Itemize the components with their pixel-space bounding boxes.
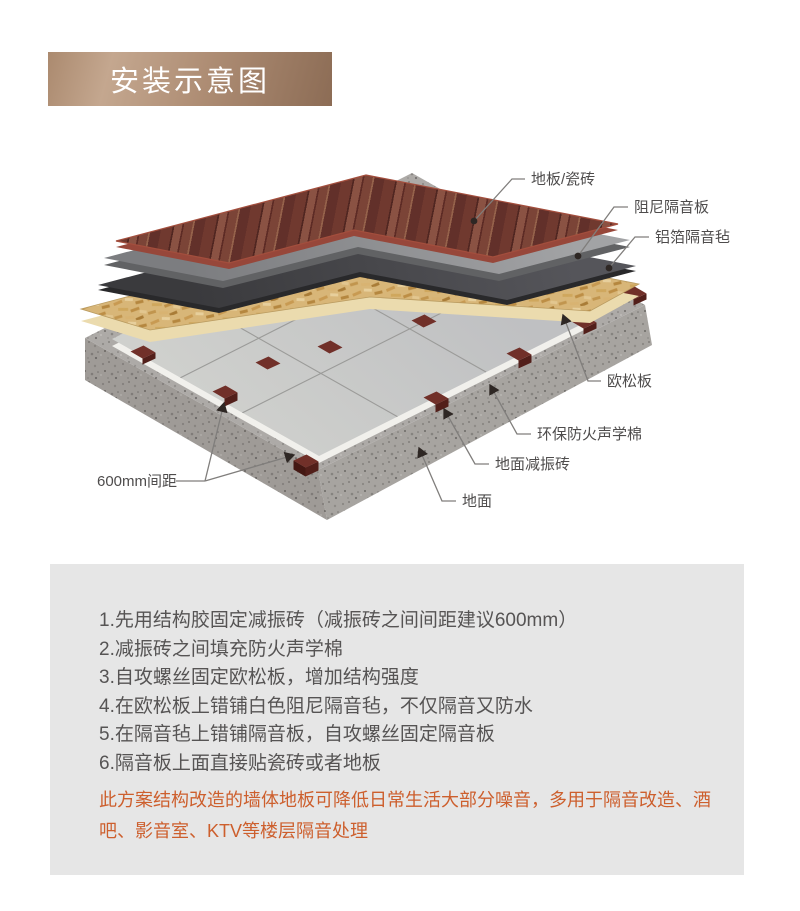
label-floor-tile: 地板/瓷砖 [531, 170, 595, 188]
label-damper-brick: 地面减振砖 [495, 456, 570, 473]
instruction-step: 2.减振砖之间填充防火声学棉 [99, 636, 744, 665]
label-ground: 地面 [462, 493, 492, 510]
label-foil-felt: 铝箔隔音毡 [655, 229, 730, 246]
label-damping-board: 阻尼隔音板 [634, 198, 709, 216]
instruction-step: 1.先用结构胶固定减振砖（减振砖之间间距建议600mm） [99, 607, 744, 636]
label-spacing: 600mm间距 [97, 473, 177, 490]
instruction-step: 6.隔音板上面直接贴瓷砖或者地板 [99, 750, 744, 779]
usage-note: 此方案结构改造的墙体地板可降低日常生活大部分噪音，多用于隔音改造、酒吧、影音室、… [99, 785, 719, 847]
instruction-step: 3.自攻螺丝固定欧松板，增加结构强度 [99, 664, 744, 693]
instruction-step: 4.在欧松板上错铺白色阻尼隔音毡，不仅隔音又防水 [99, 693, 744, 722]
instructions-panel: 1.先用结构胶固定减振砖（减振砖之间间距建议600mm） 2.减振砖之间填充防火… [50, 564, 744, 875]
label-acoustic-cotton: 环保防火声学棉 [537, 425, 642, 443]
page: 安装示意图 [0, 0, 800, 911]
instruction-step: 5.在隔音毡上错铺隔音板，自攻螺丝固定隔音板 [99, 721, 744, 750]
label-osb: 欧松板 [607, 372, 652, 390]
